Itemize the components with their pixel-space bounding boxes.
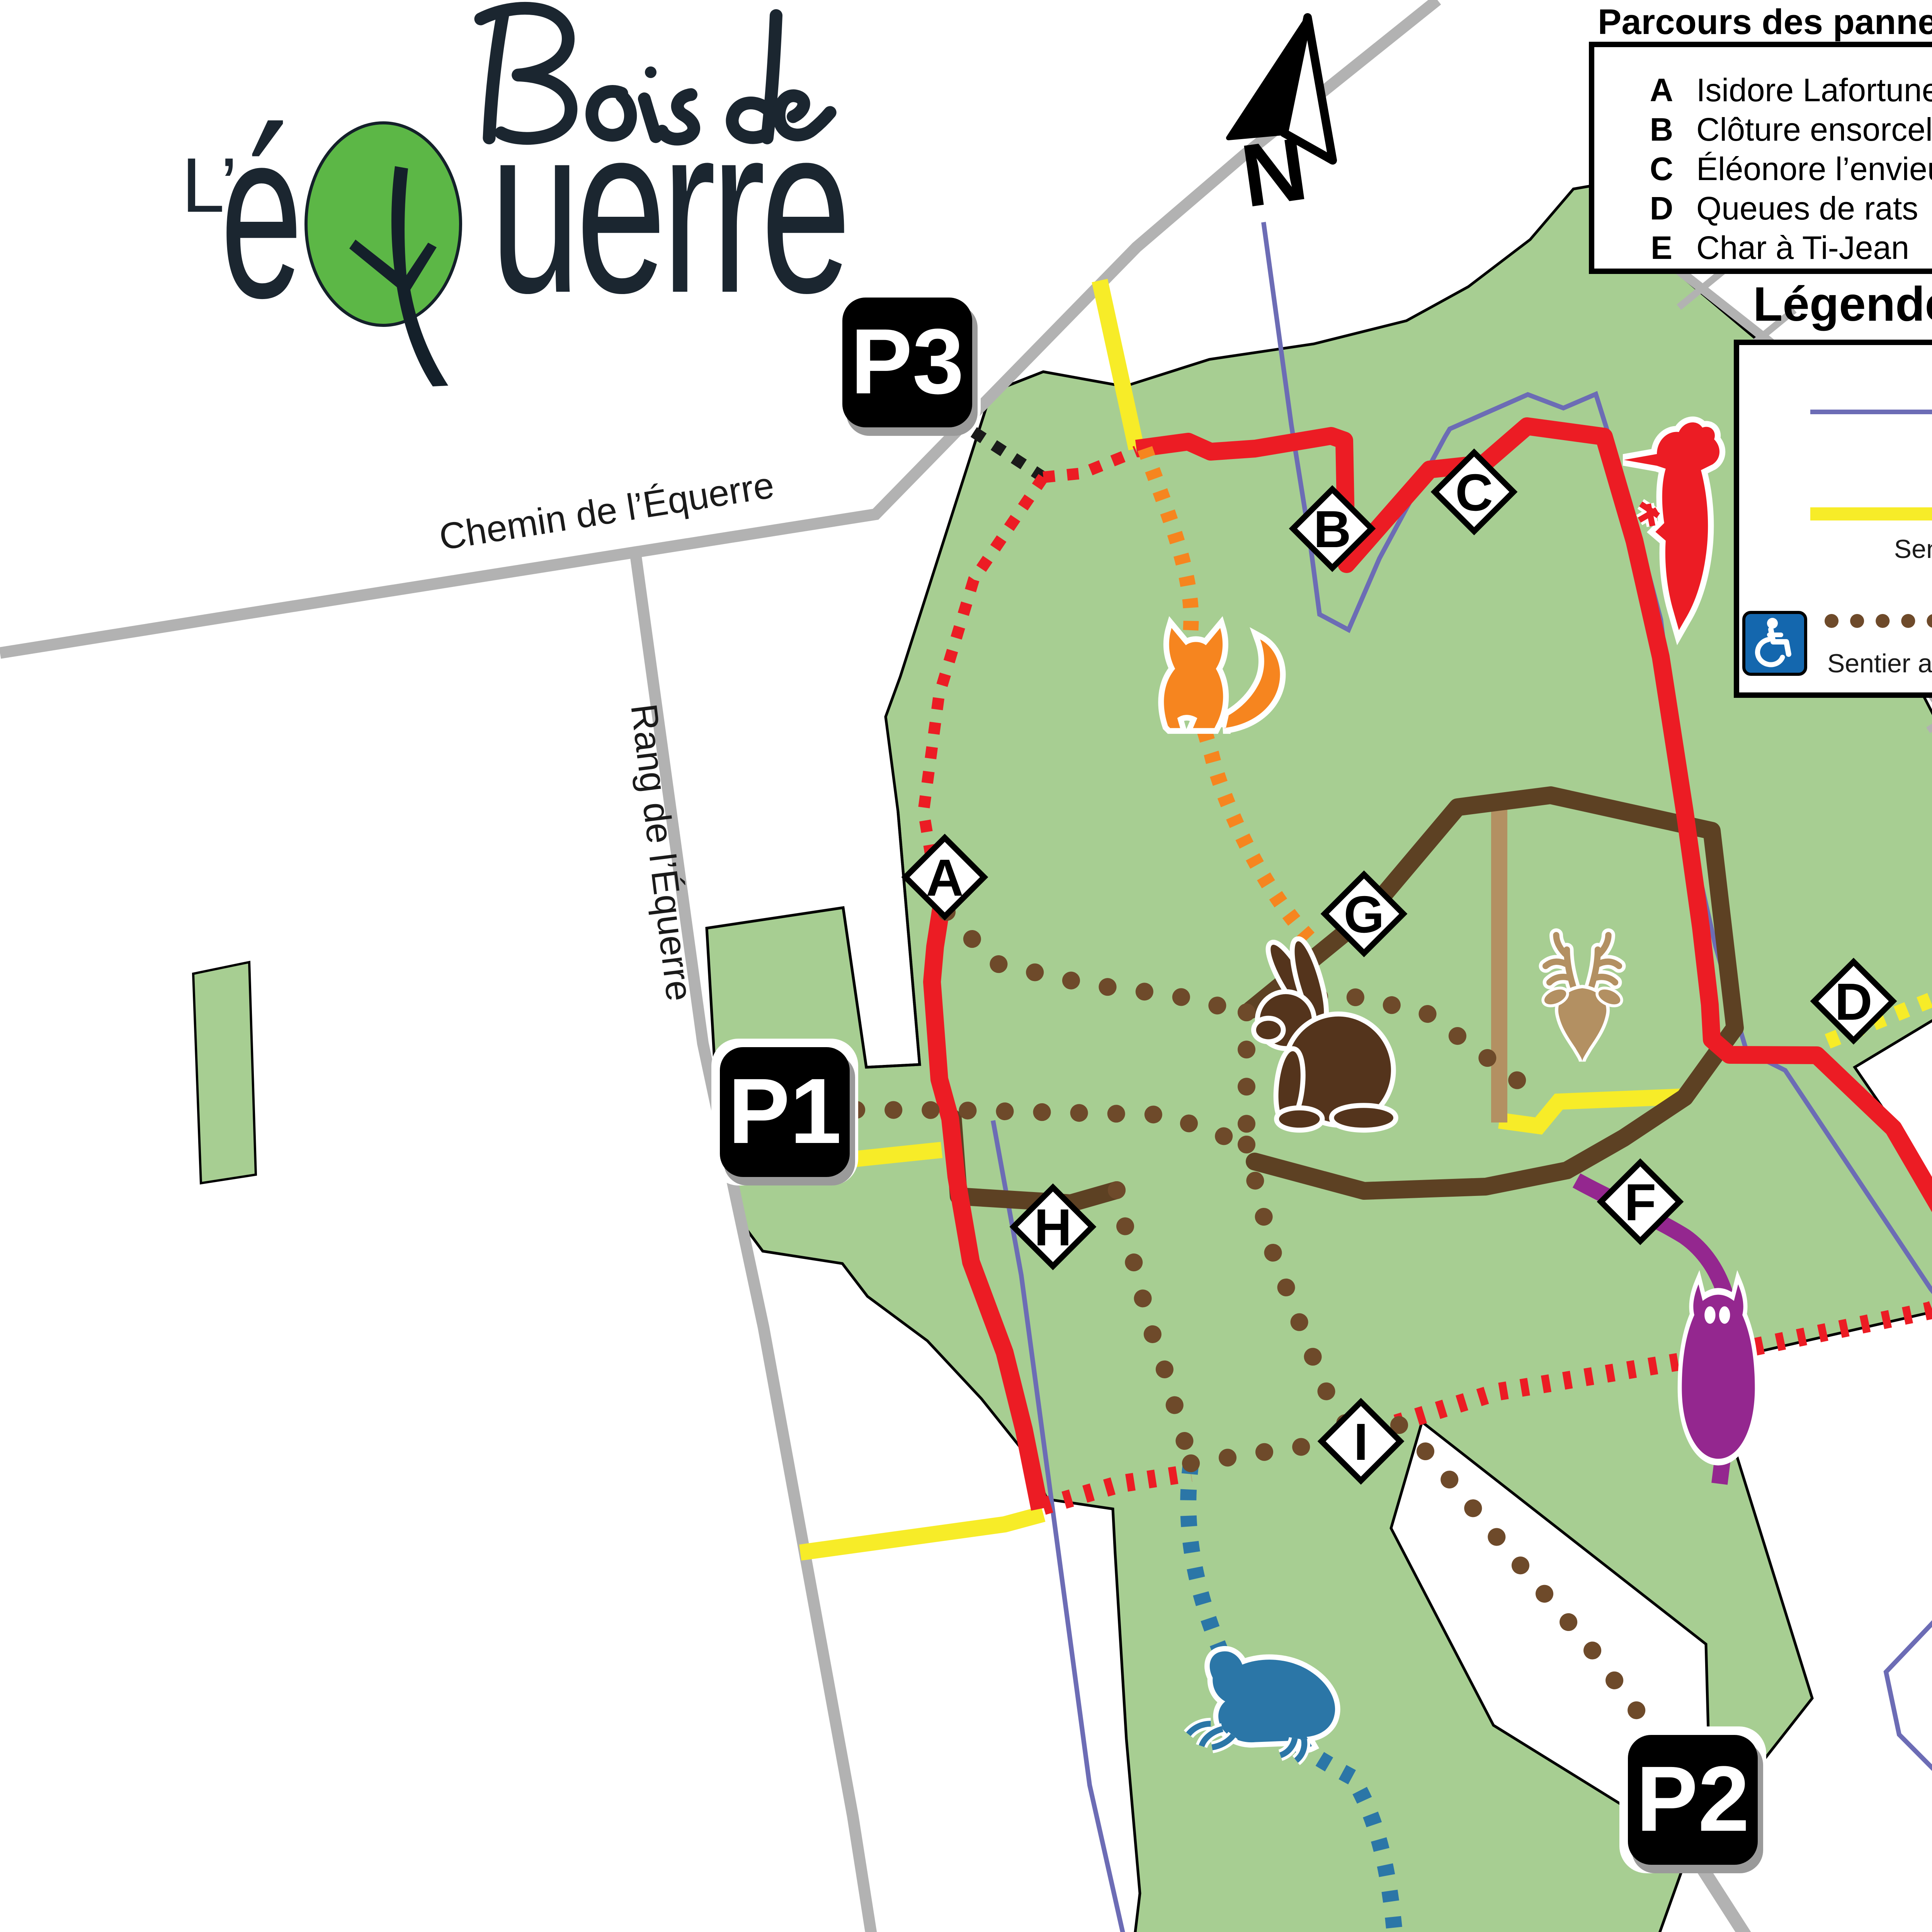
svg-text:é: é <box>220 80 303 348</box>
svg-text:Légende: Légende <box>1753 277 1932 331</box>
svg-text:Clôture ensorcelée: Clôture ensorcelée <box>1696 111 1932 148</box>
svg-text:Queues de rats: Queues de rats <box>1696 190 1918 226</box>
svg-text:E: E <box>1651 230 1672 266</box>
svg-text:Sentiers liens: Sentiers liens <box>1894 534 1932 564</box>
svg-text:C: C <box>1650 151 1673 187</box>
svg-text:B: B <box>1650 111 1673 148</box>
svg-text:D: D <box>1835 973 1872 1031</box>
svg-text:Char à Ti-Jean: Char à Ti-Jean <box>1696 230 1909 266</box>
svg-text:B: B <box>1313 500 1351 558</box>
svg-text:D: D <box>1650 190 1673 226</box>
svg-text:N: N <box>1235 119 1313 226</box>
svg-text:Éléonore l’envieuse: Éléonore l’envieuse <box>1696 151 1932 187</box>
svg-text:I: I <box>1354 1413 1368 1471</box>
svg-text:P3: P3 <box>850 310 964 413</box>
svg-text:A: A <box>1650 72 1673 108</box>
svg-text:A: A <box>926 849 964 907</box>
svg-text:P2: P2 <box>1636 1747 1750 1850</box>
svg-text:Sentier accessible: Sentier accessible <box>1827 649 1932 678</box>
svg-text:Parcours des panneaux de légen: Parcours des panneaux de légendes <box>1598 2 1932 42</box>
svg-text:uerre: uerre <box>490 75 847 343</box>
svg-text:H: H <box>1034 1198 1072 1257</box>
svg-text:G: G <box>1344 885 1384 944</box>
svg-text:P1: P1 <box>728 1059 842 1163</box>
svg-text:F: F <box>1624 1173 1656 1231</box>
svg-text:C: C <box>1455 463 1493 522</box>
svg-text:Isidore Lafortune: Isidore Lafortune <box>1696 72 1932 108</box>
